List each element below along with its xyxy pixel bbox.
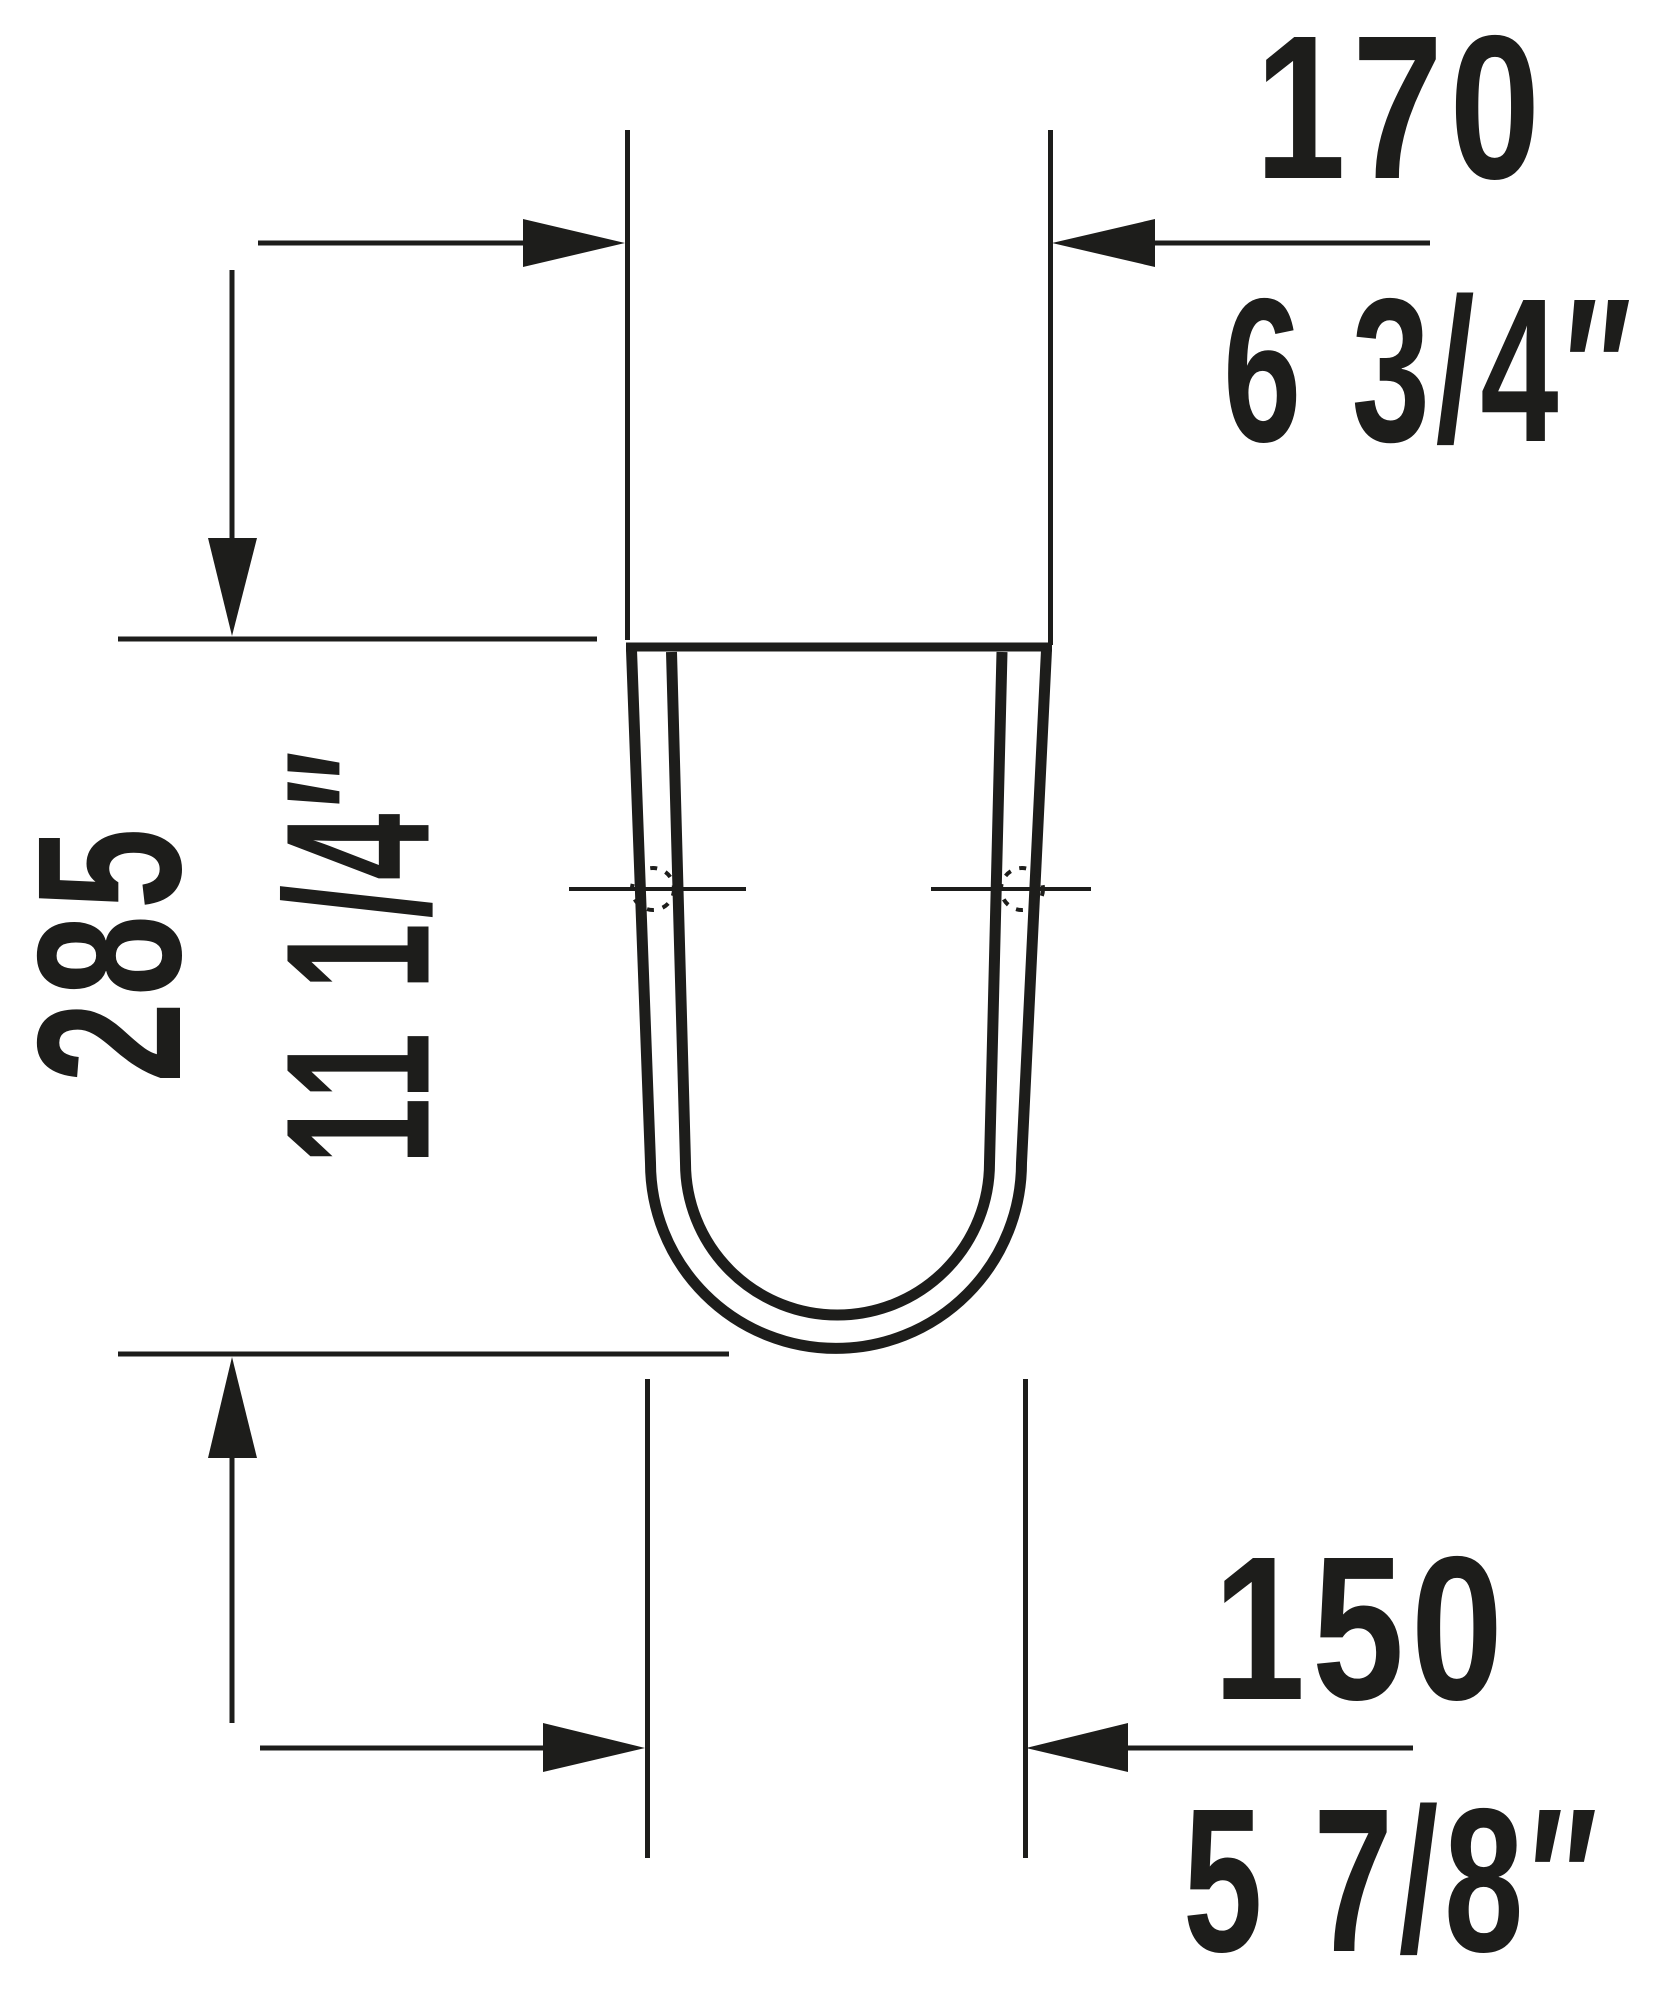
arrowhead-bottom-left-pointing	[1026, 1723, 1128, 1772]
arrowhead-top-left-pointing	[1052, 219, 1155, 267]
arrowhead-top-right-pointing	[523, 219, 625, 267]
label-top-width-mm: 170	[1255, 33, 1547, 182]
arrowhead-down-pointing	[208, 538, 257, 636]
label-bottom-width-mm: 150	[1213, 1553, 1510, 1703]
label-height-mm: 285	[32, 822, 187, 1083]
object-outer-outline	[632, 650, 1047, 1348]
label-height-inch: 11 1/4″	[277, 747, 440, 1165]
label-top-width-inch: 6 3/4″	[1223, 293, 1637, 447]
arrowhead-bottom-right-pointing	[543, 1723, 645, 1772]
label-bottom-width-inch: 5 7/8″	[1183, 1803, 1603, 1958]
arrowhead-up-pointing	[208, 1357, 257, 1458]
object-inner-outline	[672, 652, 1003, 1315]
technical-drawing-canvas: 170 6 3/4″ 285 11 1/4″ 150 5 7/8″	[0, 0, 1658, 2000]
